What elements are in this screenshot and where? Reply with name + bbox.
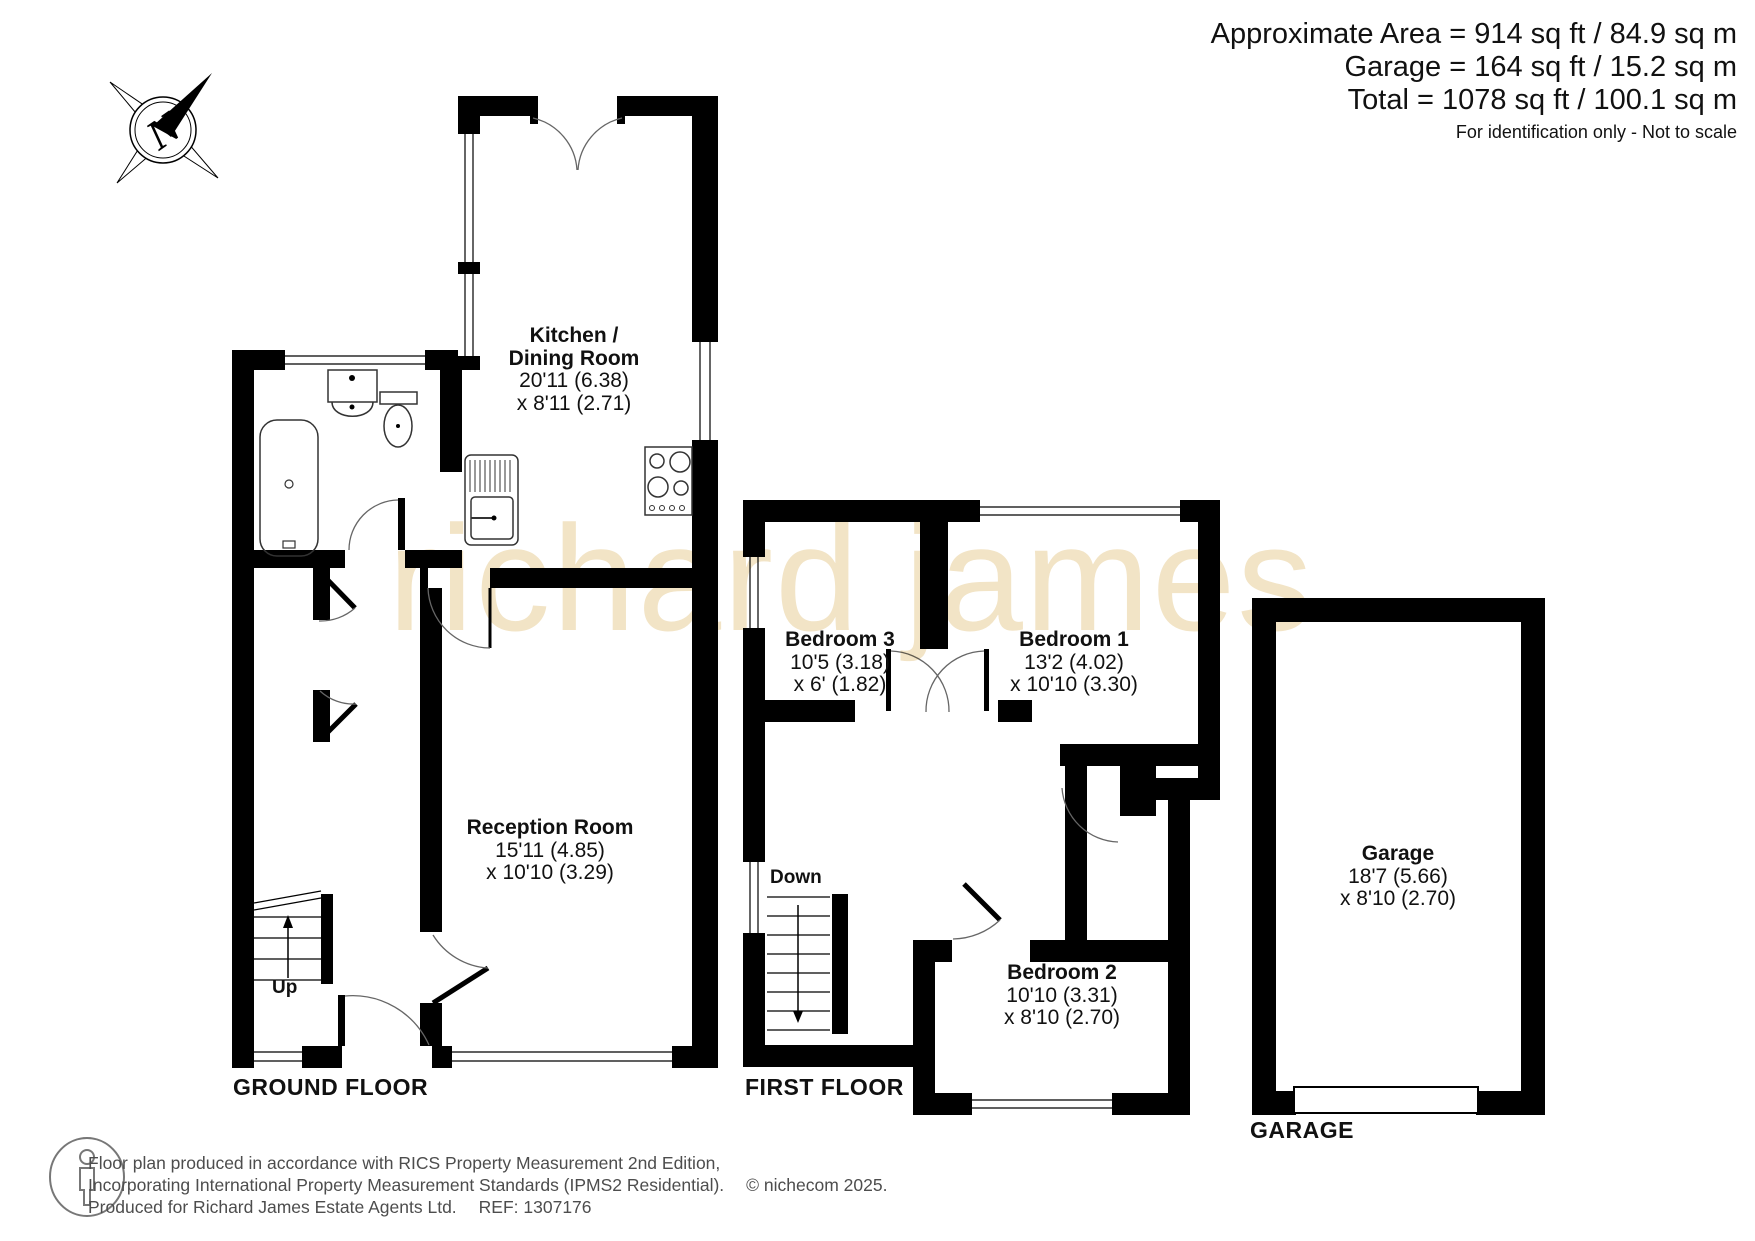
disclaimer-line2: Incorporating International Property Mea…: [88, 1174, 887, 1196]
copyright: © nichecom 2025.: [746, 1175, 887, 1195]
bathroom-fixtures: [260, 370, 417, 556]
disclaimer-line1: Floor plan produced in accordance with R…: [88, 1152, 887, 1174]
compass-rose: N: [110, 73, 218, 183]
toilet-cistern: [380, 392, 417, 404]
total-area: Total = 1078 sq ft / 100.1 sq m: [1211, 84, 1737, 117]
down-arrow: [793, 1011, 803, 1023]
ground-floor-stairs: [254, 891, 321, 980]
bedroom3-label: Bedroom 3 10'5 (3.18) x 6' (1.82): [785, 629, 895, 697]
hob: [645, 447, 692, 515]
drainer-lines: [470, 460, 510, 492]
disclaimer: Floor plan produced in accordance with R…: [88, 1152, 887, 1218]
stairs-up-label: Up: [272, 977, 297, 999]
kitchen-dining-label: Kitchen / Dining Room 20'11 (6.38) x 8'1…: [509, 325, 640, 415]
garage-title: GARAGE: [1250, 1117, 1354, 1144]
hob-knobs: [650, 506, 685, 511]
garage-door: [1294, 1087, 1478, 1113]
disclaimer-line3: Produced for Richard James Estate Agents…: [88, 1196, 887, 1218]
french-door-arc-left: [533, 118, 577, 170]
stairs-down-label: Down: [770, 867, 822, 889]
bedroom1-label: Bedroom 1 13'2 (4.02) x 10'10 (3.30): [1010, 629, 1138, 697]
bathroom-door-arc: [349, 500, 398, 550]
identification-note: For identification only - Not to scale: [1211, 121, 1737, 143]
garage-area: Garage = 164 sq ft / 15.2 sq m: [1211, 51, 1737, 84]
bedroom2-door-arc: [953, 920, 1000, 939]
first-floor-walls: [743, 500, 1220, 1115]
kitchen-fixtures: [465, 447, 692, 545]
first-floor-title: FIRST FLOOR: [745, 1074, 904, 1101]
bedroom2-label: Bedroom 2 10'10 (3.31) x 8'10 (2.70): [1004, 962, 1120, 1030]
garage-room-label: Garage 18'7 (5.66) x 8'10 (2.70): [1340, 843, 1456, 911]
floor-plan-drawing: N: [0, 0, 1755, 1241]
reference-number: REF: 1307176: [479, 1197, 592, 1217]
sink-counter: [328, 370, 377, 402]
approximate-area: Approximate Area = 914 sq ft / 84.9 sq m: [1211, 18, 1737, 51]
floor-plan-page: N: [0, 0, 1755, 1241]
hall-reception-door-arc: [433, 935, 488, 968]
bedroom1-door-arc: [926, 651, 984, 712]
bath-tap: [283, 541, 295, 548]
reception-room-label: Reception Room 15'11 (4.85) x 10'10 (3.2…: [467, 817, 634, 885]
first-floor-stairs: [767, 897, 830, 1030]
ground-floor-title: GROUND FLOOR: [233, 1074, 428, 1101]
bedroom3-door-arc: [891, 651, 949, 712]
area-summary: Approximate Area = 914 sq ft / 84.9 sq m…: [1211, 18, 1737, 143]
front-door-arc: [345, 996, 429, 1045]
french-door-arc-right: [578, 118, 622, 170]
